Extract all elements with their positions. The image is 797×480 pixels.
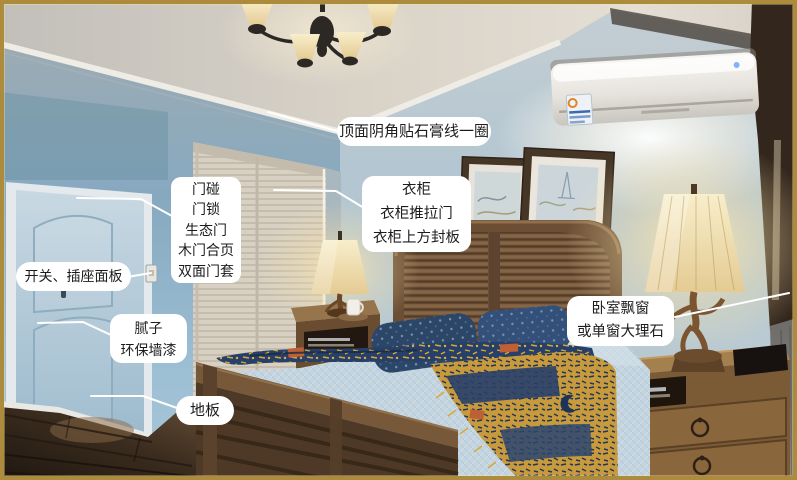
annotation-text: 顶面阴角贴石膏线一圈 (337, 117, 491, 146)
annotation-ceiling-molding: 顶面阴角贴石膏线一圈 (337, 117, 491, 146)
annotation-text: 衣柜 (362, 178, 471, 202)
annotation-text: 木门合页 (171, 240, 241, 260)
annotation-bay-window: 卧室飘窗 或单窗大理石 (567, 296, 674, 346)
bedroom-door (6, 182, 152, 442)
annotation-switch-socket: 开关、插座面板 (16, 262, 131, 291)
annotation-wardrobe: 衣柜 衣柜推拉门 衣柜上方封板 (362, 176, 471, 252)
annotation-text: 生态门 (171, 220, 241, 240)
annotation-text: 衣柜推拉门 (362, 202, 471, 226)
annotation-floor: 地板 (176, 396, 234, 425)
annotation-text: 或单窗大理石 (567, 321, 674, 344)
annotation-text: 衣柜上方封板 (362, 226, 471, 250)
annotation-putty-paint: 腻子 环保墙漆 (110, 314, 187, 363)
annotation-text: 开关、插座面板 (16, 262, 131, 291)
annotation-text: 环保墙漆 (110, 339, 187, 361)
annotation-door-hardware: 门碰 门锁 生态门 木门合页 双面门套 (171, 177, 241, 283)
annotation-text: 门锁 (171, 199, 241, 219)
energy-label (566, 94, 593, 125)
annotation-text: 地板 (176, 396, 234, 425)
mug (347, 299, 360, 315)
annotation-text: 双面门套 (171, 261, 241, 281)
annotation-text: 门碰 (171, 179, 241, 199)
annotation-text: 腻子 (110, 317, 187, 339)
air-conditioner (550, 48, 760, 126)
annotation-text: 卧室飘窗 (567, 298, 674, 321)
annotated-bedroom-image: 顶面阴角贴石膏线一圈 门碰 门锁 生态门 木门合页 双面门套 开关、插座面板 腻… (0, 0, 797, 480)
